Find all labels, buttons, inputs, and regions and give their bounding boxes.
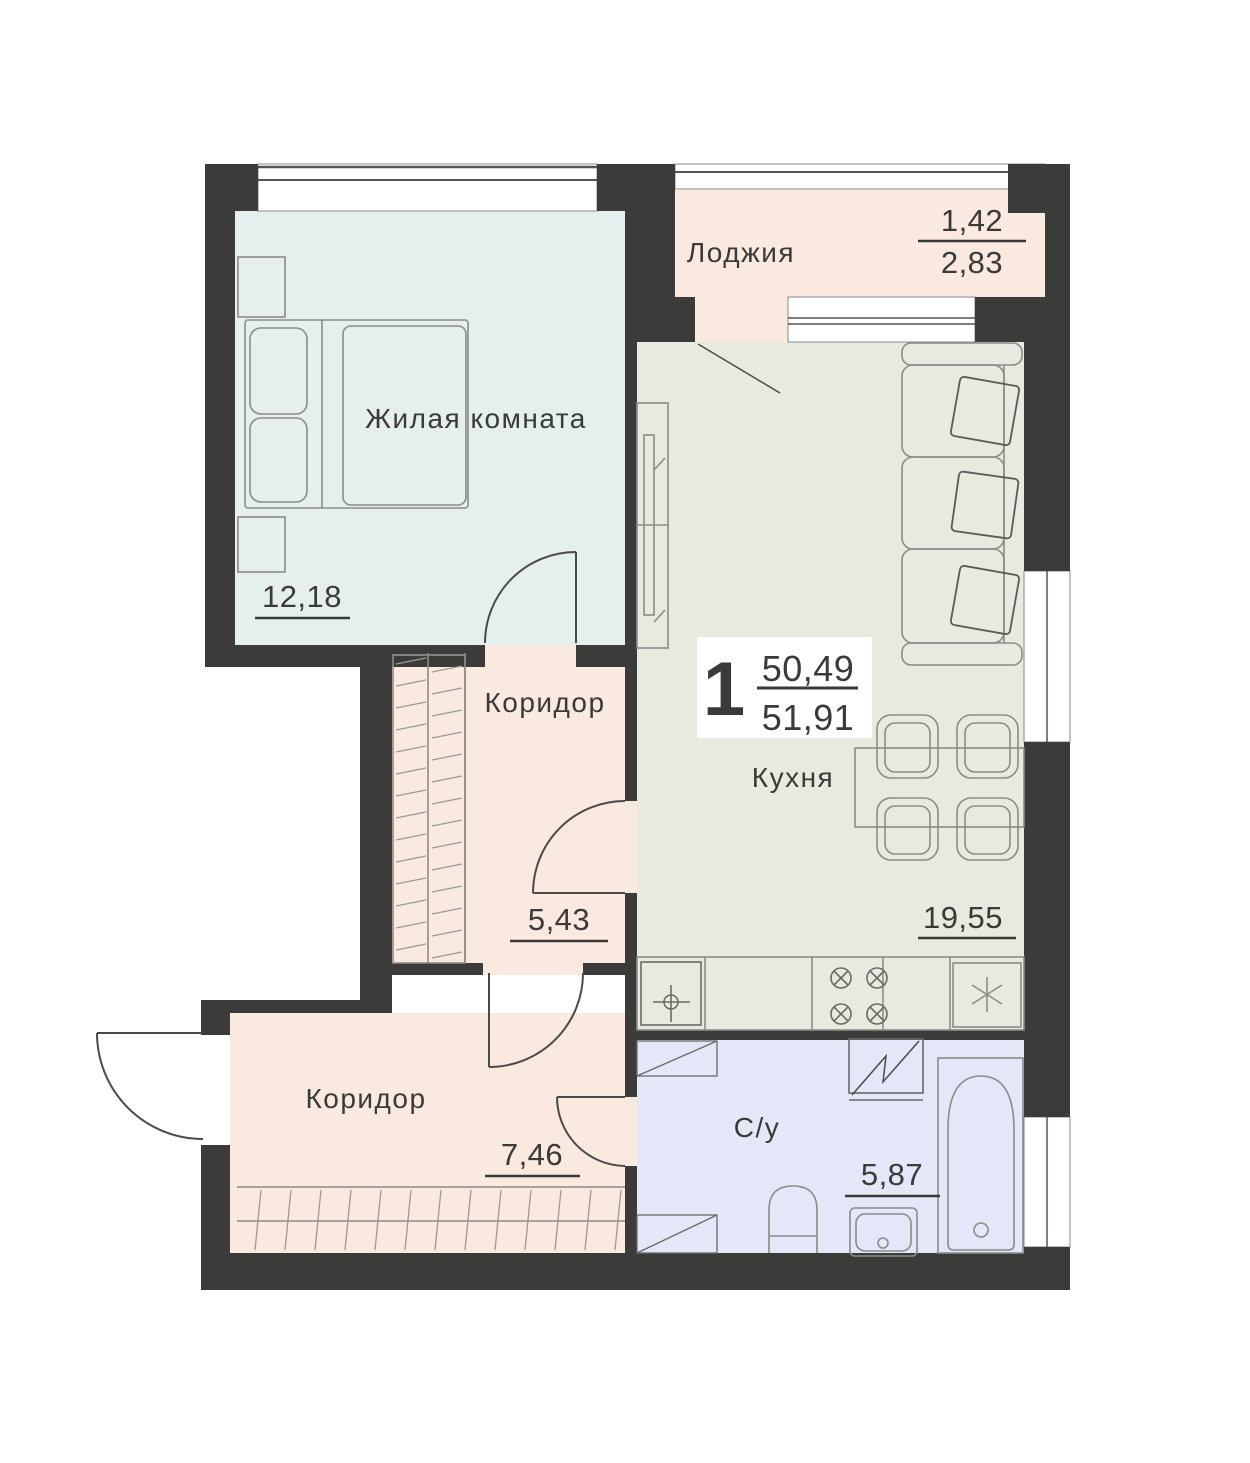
loggia-area-coef: 1,42 <box>941 203 1003 238</box>
wall-segment <box>975 297 1070 342</box>
loggia-rail <box>675 164 1045 189</box>
wall-segment <box>625 297 695 342</box>
wall-segment <box>625 342 637 645</box>
wall-segment <box>201 1000 392 1013</box>
wall-segment <box>392 963 483 975</box>
corridor-bottom-area: 7,46 <box>501 1137 563 1172</box>
kitchen-door-gap <box>625 801 637 893</box>
room-bathroom-area <box>637 1040 1024 1253</box>
entrance-door-arc-icon <box>97 1033 203 1139</box>
corridor-door-gap <box>483 963 583 975</box>
living-room-area: 12,18 <box>262 579 342 614</box>
loggia-area-full: 2,83 <box>941 245 1003 280</box>
loggia-label: Лоджия <box>687 237 795 268</box>
corridor-bottom-label: Коридор <box>305 1083 426 1114</box>
wall-segment <box>201 1013 230 1035</box>
badge-total-area: 51,91 <box>762 697 855 738</box>
wall-segment <box>625 1030 1024 1040</box>
wall-segment <box>1024 742 1070 1117</box>
kitchen-area: 19,55 <box>923 900 1003 935</box>
living-room-label: Жилая комната <box>365 403 587 434</box>
floor-plan: 1 50,49 51,91 Жилая комната 12,18 Лоджия… <box>0 0 1250 1458</box>
bathroom-door-gap <box>625 1097 637 1166</box>
corridor-top-label: Коридор <box>484 687 605 718</box>
loggia-kitchen-window <box>788 297 975 342</box>
badge-rooms-count: 1 <box>703 647 745 732</box>
wall-segment <box>1024 342 1070 571</box>
wall-segment <box>576 645 637 667</box>
wall-segment <box>625 893 637 1097</box>
wall-segment <box>625 1166 637 1253</box>
wall-segment <box>625 211 675 297</box>
bathroom-area: 5,87 <box>861 1157 923 1192</box>
living-window <box>258 164 597 211</box>
wall-segment <box>360 647 392 1013</box>
wardrobe-icon <box>393 653 465 963</box>
wall-segment <box>1045 213 1070 297</box>
apartment-badge: 1 50,49 51,91 <box>697 637 872 738</box>
wardrobe-icon <box>237 1187 625 1250</box>
kitchen-label: Кухня <box>752 762 834 793</box>
corridor-top-area: 5,43 <box>528 902 590 937</box>
wall-segment <box>205 164 235 667</box>
wall-segment <box>1008 164 1070 213</box>
bathroom-label: С/у <box>734 1112 781 1143</box>
wall-segment <box>625 667 637 801</box>
badge-living-area: 50,49 <box>762 648 855 689</box>
loggia-door-strip <box>695 297 788 342</box>
wall-segment <box>597 164 675 211</box>
wall-segment <box>201 1253 1070 1290</box>
